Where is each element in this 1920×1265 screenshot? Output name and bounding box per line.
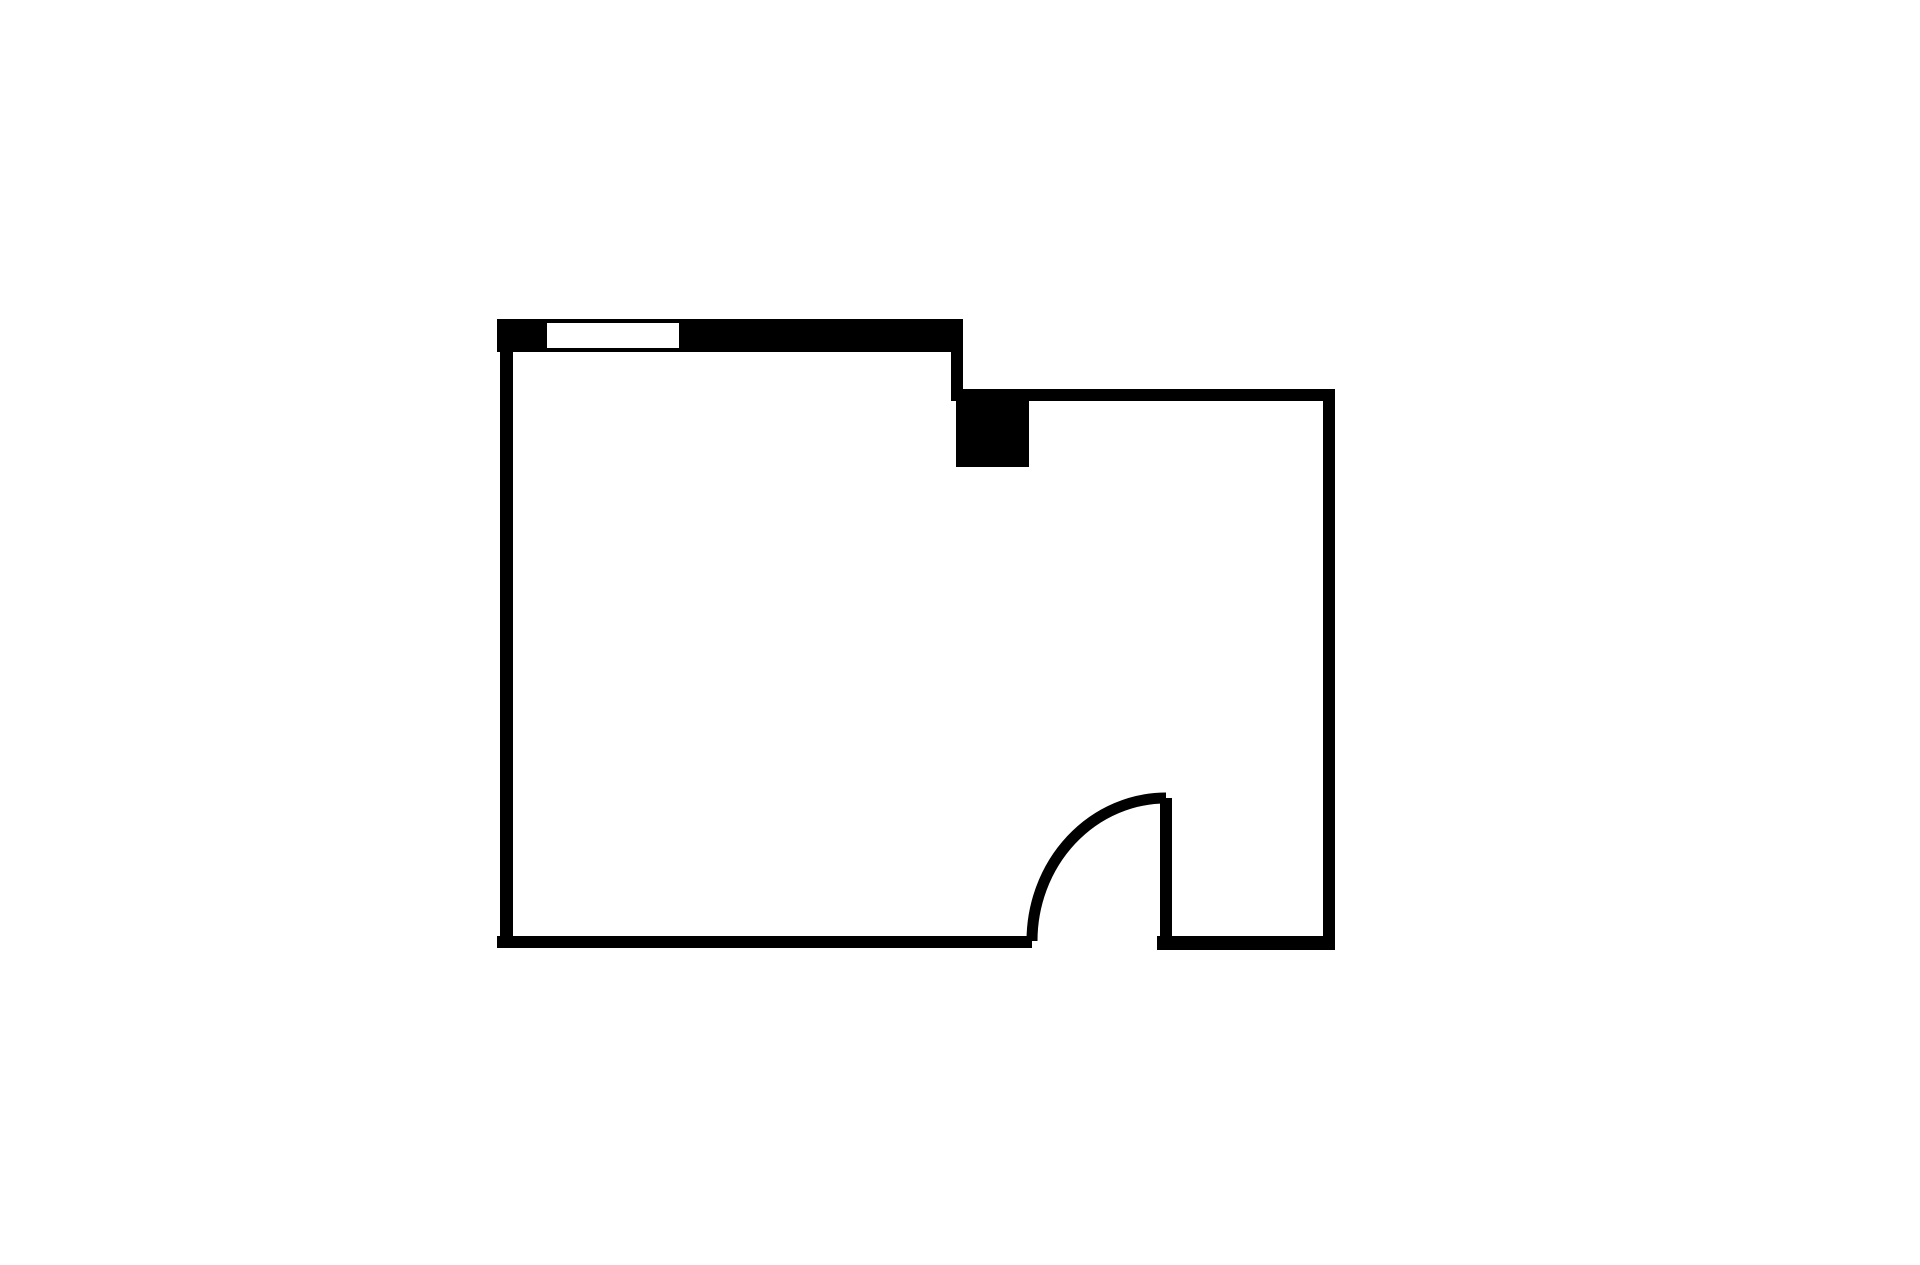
left-wall bbox=[500, 352, 513, 948]
bottom-right-wall bbox=[1157, 936, 1335, 950]
door-leaf bbox=[1160, 798, 1172, 950]
column-block bbox=[956, 390, 1029, 467]
floor-plan-page bbox=[0, 0, 1920, 1265]
floor-plan-drawing bbox=[0, 0, 1920, 1265]
door-swing-arc bbox=[1032, 798, 1166, 941]
bottom-left-wall bbox=[497, 936, 1032, 948]
window-opening bbox=[547, 323, 679, 348]
right-wall bbox=[1323, 389, 1335, 950]
